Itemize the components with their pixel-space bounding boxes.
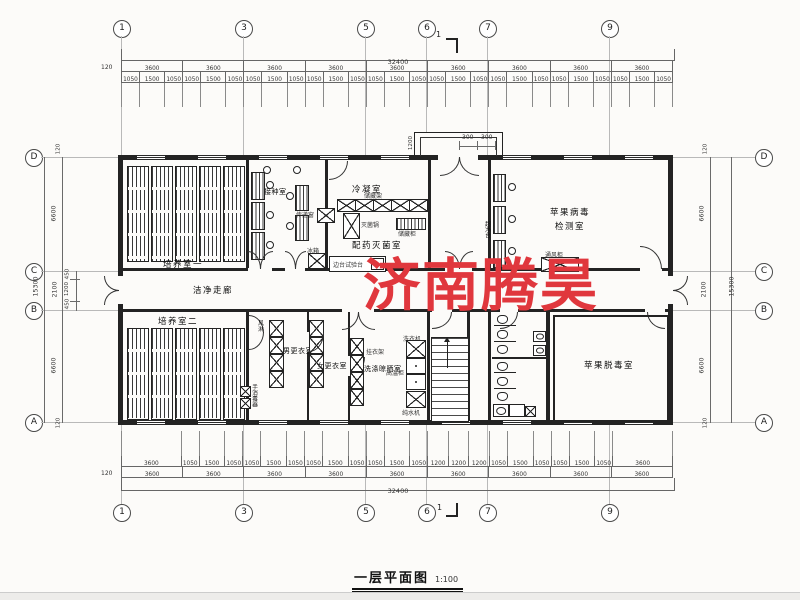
dim-segment: 3600: [121, 467, 182, 478]
dim-segment: 1050: [181, 456, 199, 467]
window: [381, 155, 409, 160]
dim-tick: [70, 301, 80, 302]
dim-segment: 1050: [489, 431, 507, 456]
air-shower-arc: [249, 332, 264, 350]
dim-right-seg: 2100: [701, 281, 708, 297]
window: [625, 155, 653, 160]
room-label-cultivation1: 培养室一: [163, 258, 203, 270]
grid-bubble: 1: [113, 20, 131, 38]
dim-segment: 3600: [427, 467, 488, 478]
culture-rack: [175, 328, 197, 420]
dim-segment: 3600: [305, 467, 366, 478]
grid-bubble: 5: [357, 20, 375, 38]
wall: [427, 312, 430, 420]
dim-segment: 1200: [427, 431, 448, 456]
dim-segment: 1050: [366, 431, 384, 456]
dim-left-sub: 450: [64, 269, 70, 280]
floor-plan-sheet: 1 3 5 6 7 9 1 3 5 6 7 9 D C B A D C B A …: [0, 0, 800, 600]
door-arc: [342, 312, 359, 330]
dim-segment: 1050: [287, 83, 305, 107]
dim-row-bottom-detail: 3600105015001050105015001050105015001050…: [121, 456, 673, 467]
grid-bubble: A: [755, 414, 773, 432]
window: [137, 155, 165, 160]
grid-bubble: 5: [357, 504, 375, 522]
dim-row-top-detail: 1050150010501050150010501050150010501050…: [121, 72, 673, 83]
equip-label-hot-cabinet: 高温柜: [386, 368, 404, 377]
grid-line: [673, 422, 755, 423]
sink: [533, 331, 546, 342]
watermark: 济南腾昊: [363, 240, 599, 322]
equip-label-sterilizer: 灭菌锅: [361, 220, 379, 229]
dim-segment: 1500: [384, 431, 409, 456]
culture-rack: [127, 166, 149, 262]
hot-cabinet-box: [406, 374, 426, 390]
dim-segment: 1500: [261, 83, 286, 107]
dim-segment: 1200: [468, 456, 489, 467]
dim-segment: 3600: [427, 61, 488, 72]
dim-segment: 1050: [532, 72, 550, 83]
dim-segment: 3600: [550, 61, 611, 72]
window: [198, 155, 226, 160]
dim-left-seg: 2100: [52, 281, 59, 297]
culture-rack: [151, 166, 173, 262]
dim-segment: 1050: [348, 431, 366, 456]
grid-bubble: 7: [479, 504, 497, 522]
dim-tick: [459, 141, 460, 150]
dim-segment: 3600: [488, 61, 549, 72]
dim-line-left: [44, 157, 45, 423]
dim-segment: 1500: [139, 72, 164, 83]
grid-bubble: D: [755, 149, 773, 167]
dim-segment: 1050: [593, 83, 611, 107]
dim-segment: 1050: [409, 456, 427, 467]
room-label-detox: 苹果脱毒室: [584, 359, 634, 371]
shelf-unit: [409, 199, 428, 212]
dim-segment: 1050: [164, 72, 182, 83]
dim-segment: 1050: [348, 456, 366, 467]
dim-segment: 3600: [243, 61, 304, 72]
clean-bench: [251, 172, 265, 200]
stool: [508, 183, 516, 191]
wall: [272, 268, 285, 271]
grid-bubble: 3: [235, 504, 253, 522]
dim-segment: 3600: [121, 431, 181, 456]
culture-rack: [199, 328, 221, 420]
dim-right-seg: 6600: [699, 357, 706, 373]
equip-label-air-shower: 风淋: [256, 320, 263, 332]
dim-segment: 1500: [384, 456, 409, 467]
dim-segment: 1050: [488, 72, 506, 83]
dim-segment: 1050: [366, 456, 384, 467]
dim-segment: 1050: [181, 431, 199, 456]
dim-segment: 3600: [550, 467, 611, 478]
dim-segment: 1050: [242, 431, 260, 456]
fixture-box: [509, 404, 525, 417]
dim-segment: 1500: [445, 72, 470, 83]
grid-line: [41, 310, 118, 311]
grid-bubble: C: [755, 263, 773, 281]
dim-segment: 1050: [427, 72, 445, 83]
locker: [350, 389, 364, 406]
shelf-unit: [337, 199, 356, 212]
locker: [269, 320, 284, 337]
dim-edge-top: 120: [101, 64, 112, 71]
dim-segment: 1050: [470, 83, 488, 107]
dim-left-sub: 450: [64, 299, 70, 310]
dim-segment: 1500: [323, 83, 348, 107]
wall: [488, 312, 491, 420]
dim-segment: 3600: [612, 456, 673, 467]
toilet-fixture: [497, 362, 508, 371]
dim-segment: 1050: [409, 431, 427, 456]
dim-line-right: [710, 157, 711, 423]
dim-edge-bottom: 120: [101, 470, 112, 477]
dim-porch-depth: 1200: [408, 136, 414, 150]
dim-segment: 1500: [506, 83, 531, 107]
grid-bubble: 6: [418, 20, 436, 38]
dim-right-edge: 120: [702, 144, 708, 155]
stool: [266, 211, 274, 219]
stool: [286, 192, 294, 200]
floor-drain: [525, 406, 536, 417]
stool: [266, 181, 274, 189]
dim-segment: 1050: [121, 72, 139, 83]
pass-window-box: [317, 208, 335, 223]
drawing-title: 一层平面图1:100: [352, 567, 463, 590]
dim-segment: 3600: [366, 61, 427, 72]
dim-segment: 1050: [242, 456, 260, 467]
clean-bench: [493, 174, 506, 202]
culture-rack: [175, 166, 197, 262]
window: [381, 420, 409, 425]
dim-segment: 1050: [224, 431, 242, 456]
toilet-fixture: [497, 392, 508, 401]
dim-segment: 1050: [304, 431, 322, 456]
grid-line: [41, 271, 118, 272]
dim-segment: 3600: [611, 61, 673, 72]
dim-segment: 1050: [409, 72, 427, 83]
dim-segment: 3600: [182, 61, 243, 72]
mop-sink: [493, 404, 509, 417]
dim-segment: 1050: [550, 72, 568, 83]
stall-divider: [494, 388, 516, 389]
dim-segment: 1500: [445, 83, 470, 107]
dim-segment: 1050: [224, 456, 242, 467]
dim-segment: 1050: [533, 431, 551, 456]
dim-segment: 1050: [594, 431, 612, 456]
dim-segment: 1050: [470, 72, 488, 83]
dim-segment: 1500: [569, 431, 594, 456]
locker: [269, 371, 284, 388]
dim-segment: 1200: [448, 431, 469, 456]
sink: [533, 345, 546, 356]
dim-segment: 1050: [366, 72, 384, 83]
dim-segment: 1050: [225, 83, 243, 107]
grid-bubble: B: [755, 302, 773, 320]
wall: [123, 309, 342, 312]
dim-tick: [70, 279, 80, 280]
dim-segment: 3600: [305, 61, 366, 72]
equip-label-coat-rack: 挂衣架: [366, 347, 384, 356]
dim-segment: 3600: [121, 61, 182, 72]
dim-segment: 3600: [243, 467, 304, 478]
window: [503, 420, 531, 425]
drawing-scale: 1:100: [435, 575, 458, 584]
door-arc: [459, 157, 479, 176]
clean-bench: [251, 202, 265, 230]
stool: [508, 215, 516, 223]
dim-segment: 3600: [611, 467, 673, 478]
window: [259, 420, 287, 425]
dim-segment: 3600: [612, 431, 673, 456]
door-arc: [104, 290, 119, 305]
dim-segment: 1050: [550, 83, 568, 107]
shelf-unit: [355, 199, 374, 212]
room-label-corridor: 洁净走廊: [193, 284, 233, 296]
door-arc: [640, 246, 662, 269]
dim-segment: 1500: [260, 431, 285, 456]
dim-segment: 3600: [121, 456, 181, 467]
dim-segment: 1500: [322, 431, 347, 456]
dim-porch-side: 300: [481, 134, 492, 141]
dim-segment: 1500: [568, 72, 593, 83]
dim-segment: 1500: [507, 456, 532, 467]
door-arc: [329, 161, 348, 180]
dim-segment: 1050: [366, 83, 384, 107]
dim-segment: 1500: [507, 431, 532, 456]
equip-label-pass-window: 传递窗: [296, 210, 314, 219]
stair-arrow-head: [444, 337, 450, 342]
dim-segment: 1050: [551, 431, 569, 456]
dim-segment: 1050: [287, 72, 305, 83]
dim-segment: 1050: [305, 83, 323, 107]
grid-bubble: A: [25, 414, 43, 432]
dim-segment: 1050: [409, 83, 427, 107]
locker: [350, 355, 364, 372]
dim-segment: 1500: [199, 456, 224, 467]
dim-segment: 1500: [139, 83, 164, 107]
dim-right-overall: 15300: [729, 276, 736, 296]
dim-segment: 1050: [532, 83, 550, 107]
dim-segment: 1050: [225, 72, 243, 83]
grid-line: [673, 271, 755, 272]
dim-segment: 1500: [323, 72, 348, 83]
stall-divider: [494, 341, 516, 342]
dim-segment: 1050: [182, 72, 200, 83]
shelf-unit: [391, 199, 410, 212]
equip-label-side-bench: 边台试验台: [333, 260, 363, 269]
room-label-virus-test-2: 检测室: [555, 220, 585, 232]
equip-label-fridge: 冰箱: [307, 246, 319, 255]
dim-right-seg: 6600: [699, 205, 706, 221]
dim-left-edge: 120: [55, 144, 61, 155]
fridge-box: [308, 253, 326, 269]
water-purifier-box: [406, 391, 426, 408]
dim-segment: 1050: [594, 456, 612, 467]
section-mark-label: 1: [437, 503, 442, 512]
grid-line: [673, 157, 755, 158]
dim-line-left: [62, 157, 63, 423]
dim-segment: 1050: [551, 456, 569, 467]
dim-segment: 1050: [305, 72, 323, 83]
dim-segment: 1050: [121, 83, 139, 107]
grid-line: [673, 310, 755, 311]
grid-bubble: 9: [601, 504, 619, 522]
hot-cabinet-box: [406, 358, 426, 374]
window: [320, 420, 348, 425]
dim-segment: 1050: [164, 83, 182, 107]
grid-line: [41, 157, 118, 158]
dim-segment: 1050: [611, 83, 629, 107]
dim-overall-bottom: 32400: [121, 478, 675, 491]
culture-rack: [199, 166, 221, 262]
clean-bench: [295, 185, 309, 211]
dim-line-left: [76, 271, 77, 311]
room-label-virus-test-1: 苹果病毒: [550, 206, 590, 218]
dim-left-seg: 6600: [51, 205, 58, 221]
dim-left-seg: 6600: [51, 357, 58, 373]
dim-overall-top: 32400: [121, 49, 675, 61]
dim-segment: 1200: [427, 456, 448, 467]
clean-bench: [493, 206, 506, 234]
dim-segment: 1050: [654, 72, 673, 83]
equip-label-hand-sanitizer: 手消毒器: [250, 384, 257, 407]
dim-segment: 1050: [533, 456, 551, 467]
dim-segment: 3600: [182, 467, 243, 478]
equip-label-water-purifier: 纯水机: [402, 408, 420, 417]
drawing-title-text: 一层平面图: [354, 571, 429, 586]
dim-segment: 1500: [629, 72, 654, 83]
dim-segment: 1500: [200, 72, 225, 83]
dim-tick: [477, 141, 478, 150]
window: [137, 420, 165, 425]
stool: [266, 241, 274, 249]
grid-bubble: B: [25, 302, 43, 320]
locker: [350, 372, 364, 389]
door-arc: [673, 276, 688, 291]
toilet-fixture: [497, 377, 508, 386]
dim-segment: 1050: [489, 456, 507, 467]
dim-right-edge: 120: [702, 418, 708, 429]
window: [564, 155, 592, 160]
dim-segment: 1500: [199, 431, 224, 456]
section-mark-label: 1: [436, 30, 441, 39]
stool: [293, 166, 301, 174]
dim-left-overall: 15300: [33, 276, 40, 296]
culture-rack: [223, 166, 245, 262]
shelf-unit: [373, 199, 392, 212]
dim-segment: 3600: [488, 467, 549, 478]
dim-ticks-bottom: 3600105015001050105015001050105015001050…: [121, 431, 673, 456]
dim-tick: [495, 141, 496, 150]
wall: [665, 309, 670, 312]
dim-segment: 1050: [654, 83, 673, 107]
culture-rack: [127, 328, 149, 420]
dim-segment: 1200: [448, 456, 469, 467]
dim-segment: 1500: [260, 456, 285, 467]
wall: [118, 304, 123, 425]
window: [198, 420, 226, 425]
dim-segment: 1500: [322, 456, 347, 467]
toilet-fixture: [497, 345, 508, 354]
wall: [668, 155, 673, 276]
grid-bubble: D: [25, 149, 43, 167]
toilet-fixture: [497, 330, 508, 339]
dim-segment: 1500: [384, 83, 409, 107]
door-arc: [295, 251, 306, 269]
locker: [350, 338, 364, 355]
grid-bubble: 3: [235, 20, 253, 38]
dim-segment: 1050: [182, 83, 200, 107]
dim-porch-side: 300: [462, 134, 473, 141]
dim-segment: 1500: [629, 83, 654, 107]
dim-segment: 1500: [506, 72, 531, 83]
dim-segment: 1050: [611, 72, 629, 83]
grid-bubble: 1: [113, 504, 131, 522]
washer-box: [406, 340, 426, 358]
dim-segment: 1050: [488, 83, 506, 107]
grid-bubble: 6: [418, 504, 436, 522]
sterilizer-box: [343, 213, 360, 239]
dim-segment: 1500: [569, 456, 594, 467]
dim-left-sub: 1200: [64, 282, 70, 296]
stall-divider: [494, 325, 516, 326]
wall: [546, 312, 550, 420]
stool: [263, 166, 271, 174]
culture-rack: [151, 328, 173, 420]
locker: [309, 371, 324, 388]
dim-segment: 1050: [286, 456, 304, 467]
dim-segment: 1500: [200, 83, 225, 107]
dim-segment: 1500: [568, 83, 593, 107]
dim-segment: 1200: [468, 431, 489, 456]
door-arc: [673, 290, 688, 305]
dim-row-top-bays: 360036003600360036003600360036003600: [121, 61, 673, 72]
dim-row-bottom-bays: 360036003600360036003600360036003600: [121, 467, 673, 478]
dim-segment: 1050: [593, 72, 611, 83]
dim-segment: 1050: [286, 431, 304, 456]
dim-segment: 1500: [384, 72, 409, 83]
door-arc: [440, 157, 460, 176]
dim-left-edge: 120: [55, 418, 61, 429]
dim-segment: 1050: [304, 456, 322, 467]
door-arc: [104, 276, 119, 291]
grid-bubble: 9: [601, 20, 619, 38]
window: [503, 155, 531, 160]
locker: [269, 337, 284, 354]
dim-segment: 1050: [427, 83, 445, 107]
locker: [269, 354, 284, 371]
dim-segment: 1050: [243, 72, 261, 83]
dim-ticks-top: 1050150010501050150010501050150010501050…: [121, 83, 673, 107]
stair-arrow-line: [447, 342, 448, 368]
dim-segment: 1050: [348, 83, 366, 107]
grid-line: [41, 422, 118, 423]
wall: [118, 155, 123, 276]
stall-divider: [494, 372, 516, 373]
room-label-cultivation2: 培养室二: [158, 315, 198, 327]
equip-label-clean-bench: 超净台: [483, 221, 490, 238]
room-label-women-changing: 女更衣室: [317, 361, 347, 371]
dim-segment: 1050: [348, 72, 366, 83]
section-mark: [446, 515, 458, 517]
wall: [662, 268, 670, 271]
dim-segment: 1500: [261, 72, 286, 83]
stool: [286, 222, 294, 230]
equip-label-storage-cabinet: 储藏柜: [398, 229, 416, 238]
page-bottom-strip: [0, 592, 800, 600]
dim-segment: 1050: [243, 83, 261, 107]
